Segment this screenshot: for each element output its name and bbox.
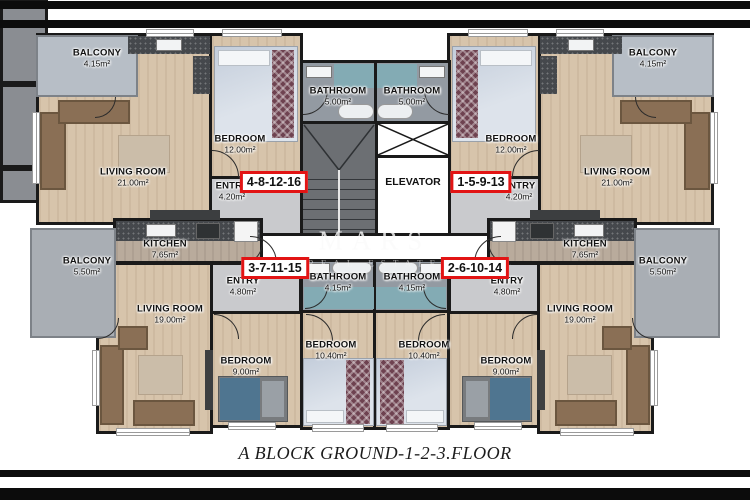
elevator-cab (375, 155, 451, 236)
bed-pillows (406, 410, 444, 423)
shaft-cross-icon (378, 124, 448, 155)
room-label-bathroom5-r: BATHROOM5.00m² (384, 87, 441, 108)
unit-badge-top-left: 4-8-12-16 (240, 171, 308, 193)
shower-area (334, 64, 374, 88)
stairs (300, 121, 378, 236)
frame-bar-bottom-outer (0, 488, 750, 500)
sofa (133, 400, 195, 426)
bed-pillows (480, 50, 532, 66)
rug (138, 355, 183, 395)
bed-pillows (466, 381, 488, 417)
sofa (626, 345, 650, 425)
window (116, 428, 190, 436)
room-label-bedroom12-tr: BEDROOM12.00m² (485, 135, 536, 156)
room-label-bedroom9-r: BEDROOM9.00m² (480, 357, 531, 378)
window (560, 428, 634, 436)
room-label-bedroom104-r: BEDROOM10.40m² (398, 341, 449, 362)
window (650, 350, 658, 406)
bed-pillows (218, 50, 270, 66)
window (32, 112, 40, 184)
armchair (602, 326, 632, 350)
room-label-living19-r: LIVING ROOM19.00m² (547, 305, 613, 326)
bed-throw (272, 50, 294, 138)
room-label-kitchen-r: KITCHEN7.65m² (563, 240, 607, 261)
stove-icon (540, 56, 557, 94)
window (92, 350, 100, 406)
plan-caption: A BLOCK GROUND-1-2-3.FLOOR (0, 443, 750, 464)
sink-icon (419, 66, 445, 78)
sofa (100, 345, 124, 425)
window (474, 422, 522, 430)
sink-icon (306, 66, 332, 78)
room-label-entry-ml: ENTRY4.80m² (227, 277, 260, 298)
room-label-living-tr: LIVING ROOM21.00m² (584, 168, 650, 189)
room-label-bathroom5-l: BATHROOM5.00m² (310, 87, 367, 108)
floor-plan-image: ELEVATOR (0, 0, 750, 500)
sink-icon (146, 224, 176, 237)
sofa (555, 400, 617, 426)
room-label-bathroom415-r: BATHROOM4.15m² (384, 273, 441, 294)
bed-blanket (490, 378, 530, 420)
frame-bar-top-inner (0, 20, 750, 28)
window (222, 29, 282, 37)
bed-blanket (220, 378, 260, 420)
unit-badge-mid-left: 3-7-11-15 (241, 257, 309, 279)
sofa (620, 100, 692, 124)
room-label-bedroom104-l: BEDROOM10.40m² (305, 341, 356, 362)
window (228, 422, 276, 430)
stove-icon (196, 223, 220, 239)
rug (567, 355, 612, 395)
sink-icon (574, 224, 604, 237)
room-label-bathroom415-l: BATHROOM4.15m² (310, 273, 367, 294)
room-label-living-tl: LIVING ROOM21.00m² (100, 168, 166, 189)
room-label-bedroom12-tl: BEDROOM12.00m² (214, 135, 265, 156)
frame-bar-bottom-inner (0, 470, 750, 477)
window (312, 424, 364, 432)
watermark: MARS REAL ESTATE (308, 226, 442, 269)
window (386, 424, 438, 432)
bed-pillows (306, 410, 344, 423)
stove-icon (193, 56, 210, 94)
armchair (118, 326, 148, 350)
room-label-living19-l: LIVING ROOM19.00m² (137, 305, 203, 326)
tv-unit (205, 350, 213, 410)
unit-badge-mid-right: 2-6-10-14 (441, 257, 509, 279)
room-label-balcony-ml: BALCONY5.50m² (63, 257, 111, 278)
frame-bar-top-outer (0, 1, 750, 9)
stove-icon (530, 223, 554, 239)
bed-throw (346, 360, 370, 424)
elevator-shaft (375, 121, 451, 158)
tv-unit (530, 210, 600, 220)
window (146, 29, 194, 37)
watermark-subtitle: REAL ESTATE (308, 259, 442, 269)
room-label-entry-mr: ENTRY4.80m² (491, 277, 524, 298)
room-label-kitchen-l: KITCHEN7.65m² (143, 240, 187, 261)
sink-icon (156, 39, 182, 51)
sofa (58, 100, 130, 124)
room-label-balcony-tl: BALCONY4.15m² (73, 49, 121, 70)
shower-area (377, 64, 417, 88)
window (710, 112, 718, 184)
bed-pillows (262, 381, 284, 417)
tv-unit (537, 350, 545, 410)
window (556, 29, 604, 37)
bed-throw (456, 50, 478, 138)
room-label-bedroom9-l: BEDROOM9.00m² (220, 357, 271, 378)
room-label-balcony-tr: BALCONY4.15m² (629, 49, 677, 70)
window (468, 29, 528, 37)
stair-flight-lines (303, 124, 375, 233)
room-label-balcony-mr: BALCONY5.50m² (639, 257, 687, 278)
unit-badge-top-right: 1-5-9-13 (450, 171, 511, 193)
watermark-brand: MARS (308, 226, 442, 257)
sink-icon (568, 39, 594, 51)
elevator-label: ELEVATOR (385, 176, 440, 188)
bed-throw (380, 360, 404, 424)
tv-unit (150, 210, 220, 220)
